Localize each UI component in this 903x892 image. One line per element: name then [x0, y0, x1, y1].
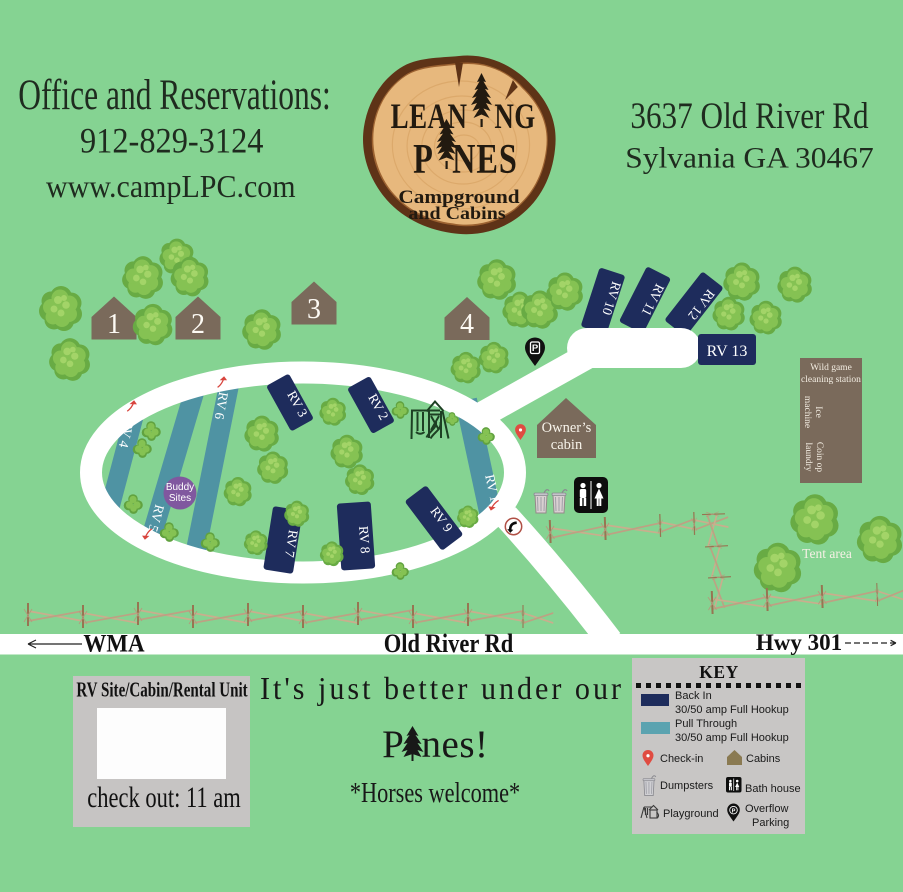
svg-text:Old River Rd: Old River Rd [384, 630, 514, 659]
svg-text:cabin: cabin [551, 437, 583, 453]
svg-text:P: P [413, 136, 433, 183]
svg-text:cleaning station: cleaning station [801, 375, 861, 385]
svg-text:nes!: nes! [422, 723, 489, 766]
svg-text:Dumpsters: Dumpsters [660, 780, 714, 792]
svg-text:3: 3 [307, 294, 321, 325]
svg-text:1: 1 [107, 309, 121, 340]
svg-text:Bath house: Bath house [745, 783, 801, 795]
svg-text:912-829-3124: 912-829-3124 [80, 121, 264, 161]
svg-text:4: 4 [460, 309, 474, 340]
svg-text:machine: machine [802, 396, 812, 428]
svg-text:www.campLPC.com: www.campLPC.com [46, 169, 296, 204]
svg-text:Ice: Ice [813, 406, 823, 418]
svg-text:Cabins: Cabins [746, 753, 781, 765]
svg-text:P: P [382, 723, 404, 766]
svg-text:and Cabins: and Cabins [408, 204, 505, 224]
svg-text:NG: NG [494, 96, 535, 136]
svg-text:*Horses welcome*: *Horses welcome* [350, 776, 520, 808]
svg-text:Owner’s: Owner’s [542, 420, 592, 436]
svg-text:Sites: Sites [169, 493, 191, 504]
svg-text:It's just better under our: It's just better under our [260, 670, 624, 706]
svg-text:KEY: KEY [699, 662, 738, 682]
svg-text:30/50 amp Full Hookup: 30/50 amp Full Hookup [675, 732, 789, 744]
svg-text:Overflow: Overflow [745, 803, 788, 815]
svg-text:Coin op: Coin op [814, 442, 824, 473]
svg-text:WMA: WMA [83, 630, 145, 658]
svg-text:Tent area: Tent area [802, 546, 852, 561]
svg-text:RV 13: RV 13 [707, 343, 748, 360]
svg-text:3637 Old River Rd: 3637 Old River Rd [630, 97, 868, 137]
svg-text:check out: 11 am: check out: 11 am [87, 780, 241, 814]
svg-text:Office and Reservations:: Office and Reservations: [18, 71, 330, 119]
svg-text:Sylvania GA 30467: Sylvania GA 30467 [625, 141, 873, 174]
svg-text:30/50 amp Full Hookup: 30/50 amp Full Hookup [675, 704, 789, 716]
svg-text:P: P [732, 808, 736, 814]
svg-text:Check-in: Check-in [660, 753, 703, 765]
svg-text:RV Site/Cabin/Rental Unit: RV Site/Cabin/Rental Unit [76, 678, 248, 702]
svg-text:Back In: Back In [675, 690, 712, 702]
svg-text:LEAN: LEAN [391, 96, 468, 136]
svg-text:Wild game: Wild game [810, 363, 852, 373]
svg-text:Hwy 301: Hwy 301 [756, 630, 842, 655]
svg-text:Pull Through: Pull Through [675, 718, 737, 730]
svg-text:Parking: Parking [752, 817, 789, 829]
svg-text:laundry: laundry [803, 442, 813, 471]
svg-text:2: 2 [191, 309, 205, 340]
svg-text:RV 8: RV 8 [356, 525, 373, 554]
svg-text:NES: NES [452, 136, 518, 183]
svg-text:Playground: Playground [663, 808, 719, 820]
svg-text:Buddy: Buddy [166, 482, 194, 493]
